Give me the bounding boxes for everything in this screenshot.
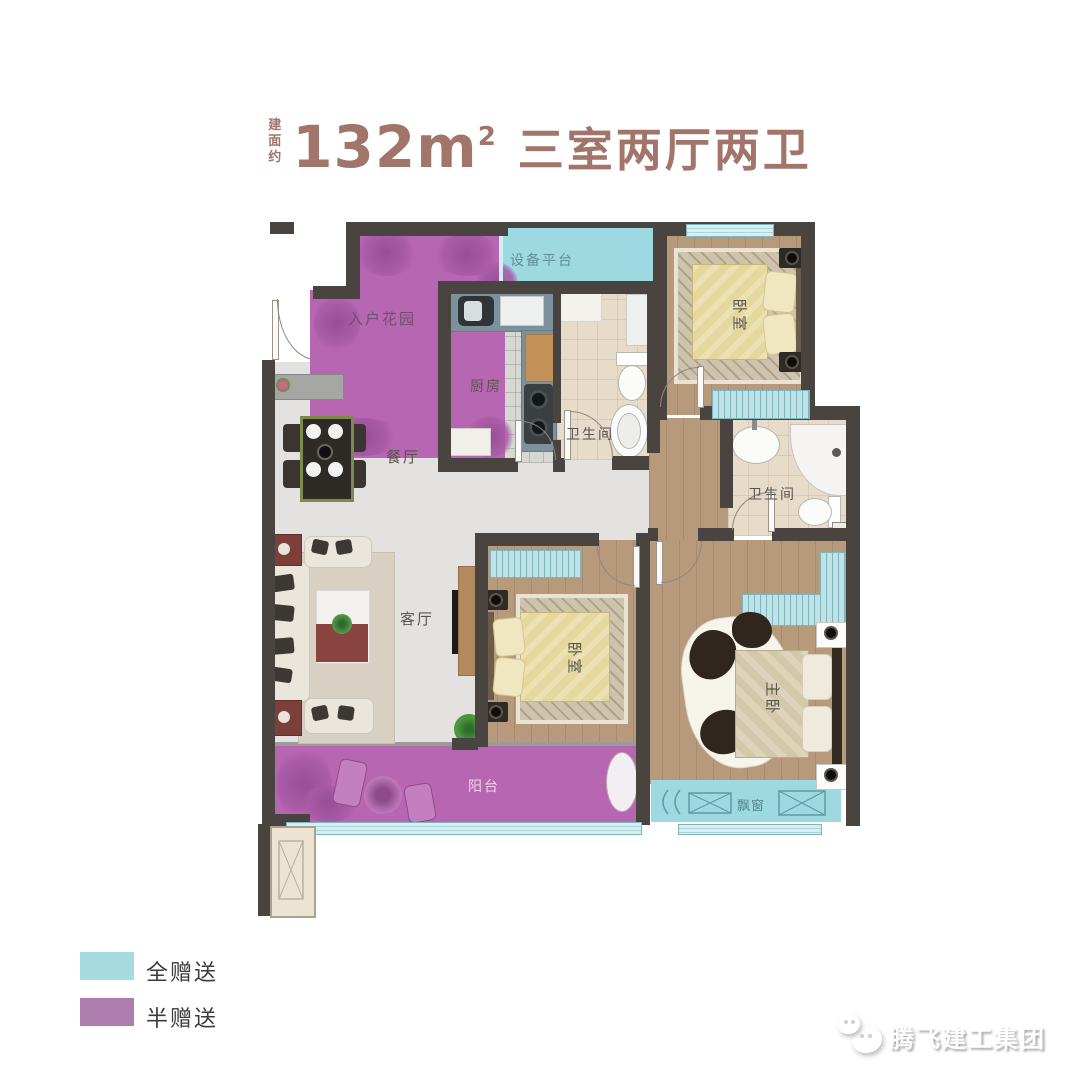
wall-segment [553, 288, 561, 423]
sofa-cushion [335, 539, 353, 556]
label-equipment-platform: 设备平台 [510, 250, 574, 270]
wall-segment [503, 222, 658, 228]
laundry-tub [606, 752, 638, 812]
label-bedroom-2: 卧室 [565, 631, 586, 687]
wall-segment [647, 281, 660, 453]
wall-segment [612, 456, 649, 470]
wall-segment [438, 281, 660, 294]
tv-screen [452, 590, 458, 654]
bubble-eye [860, 1034, 864, 1038]
wall-segment [346, 222, 508, 236]
balcony-flower [364, 776, 402, 814]
lamp [787, 357, 797, 367]
wall-segment [262, 360, 275, 824]
area-prefix: 建面约 [268, 118, 284, 166]
cowhide-patch [732, 612, 772, 648]
corridor-floor [649, 418, 728, 540]
wall-segment [475, 533, 599, 546]
pillow [762, 312, 798, 355]
bath1-sink-inner [617, 413, 641, 449]
wall-segment [475, 533, 488, 747]
plate [328, 424, 343, 439]
centerpiece [319, 446, 331, 458]
square-meter-exponent: 2 [478, 122, 496, 152]
legend-label-half-gift: 半赠送 [146, 1001, 218, 1033]
chat-bubbles-logo-icon [838, 1012, 890, 1060]
entry-door-arc [277, 299, 316, 360]
label-dining-room: 餐厅 [386, 446, 420, 467]
pillow [492, 617, 526, 658]
wall-segment [772, 528, 860, 541]
master-headboard [832, 648, 842, 764]
burner [529, 390, 548, 409]
label-kitchen: 厨房 [470, 376, 502, 396]
plate [306, 424, 321, 439]
wall-segment [452, 738, 478, 750]
lamp [491, 707, 501, 717]
toilet2-bowl [798, 498, 832, 526]
wall-segment [258, 824, 270, 916]
wall-segment [438, 458, 518, 472]
company-watermark: 腾飞建工集团 [838, 1012, 1046, 1060]
wall-segment [720, 418, 733, 508]
company-name: 腾飞建工集团 [890, 1019, 1046, 1054]
lamp [826, 770, 836, 780]
label-entry-garden: 入户花园 [348, 308, 416, 329]
wall-segment [438, 281, 451, 458]
label-bathroom-2: 卫生间 [748, 484, 796, 504]
sofa-cushion [337, 705, 355, 721]
ac-platform-symbol [278, 840, 304, 900]
area-value: 132m2 [292, 108, 496, 176]
sideboard-flower [276, 378, 290, 392]
kitchen-sink-bowl [464, 301, 482, 321]
legend-swatch-half-gift [80, 998, 134, 1026]
label-bathroom-1: 卫生间 [566, 424, 614, 444]
wall-segment [846, 406, 860, 826]
label-balcony: 阳台 [468, 776, 500, 796]
lightwell-window [712, 390, 810, 419]
label-master-bedroom: 主卧 [763, 671, 784, 727]
bedroom1-window [686, 224, 774, 237]
dish-rack [500, 296, 544, 326]
bubble-eye [868, 1034, 872, 1038]
toilet-bowl [618, 365, 646, 401]
legend-label-full-gift: 全赠送 [146, 955, 218, 987]
pillow [762, 270, 798, 313]
legend-swatch-full-gift [80, 952, 134, 980]
side-table-decor [278, 711, 290, 723]
bubble-eye [851, 1020, 855, 1024]
label-living-room: 客厅 [400, 608, 434, 629]
pillow [492, 657, 526, 698]
flower-bed [355, 230, 417, 276]
bubble-eye [844, 1020, 848, 1024]
bedroom2-wardrobe [490, 550, 582, 578]
balcony-sill-window [286, 822, 642, 835]
chevron-marks [656, 788, 682, 816]
master-wardrobe-side [820, 552, 846, 624]
pillow [802, 706, 832, 752]
window-symbol [688, 792, 732, 814]
window-symbol [778, 790, 826, 816]
wall-segment [698, 528, 722, 541]
bath2-sink-faucet [752, 420, 757, 430]
bath1-cabinet [560, 292, 602, 322]
lamp [787, 253, 797, 263]
toilet-tank [616, 352, 648, 366]
shower-head [832, 448, 841, 457]
bath2-sink [732, 426, 780, 464]
garden-platform-divider [499, 228, 503, 284]
page-title: 建面约 132m2 三室两厅两卫 [0, 108, 1080, 180]
floor-plan-page: 建面约 132m2 三室两厅两卫 [0, 0, 1080, 1080]
plate [306, 462, 321, 477]
side-table-decor [278, 543, 290, 555]
bath1-tall-cabinet [626, 294, 649, 346]
label-bedroom-1: 卧室 [730, 288, 751, 344]
bay-sill-window [678, 824, 822, 835]
pillow [802, 654, 832, 700]
sofa-cushion [311, 538, 330, 555]
plate [328, 462, 343, 477]
wall-segment [270, 222, 294, 234]
wall-segment [313, 286, 360, 299]
label-bay-window: 飘窗 [737, 795, 765, 814]
lamp [491, 595, 501, 605]
layout-description: 三室两厅两卫 [518, 114, 812, 180]
cutting-board [525, 334, 554, 382]
lamp [826, 628, 836, 638]
table-plant [332, 614, 352, 634]
kitchen-cabinet [447, 428, 491, 456]
